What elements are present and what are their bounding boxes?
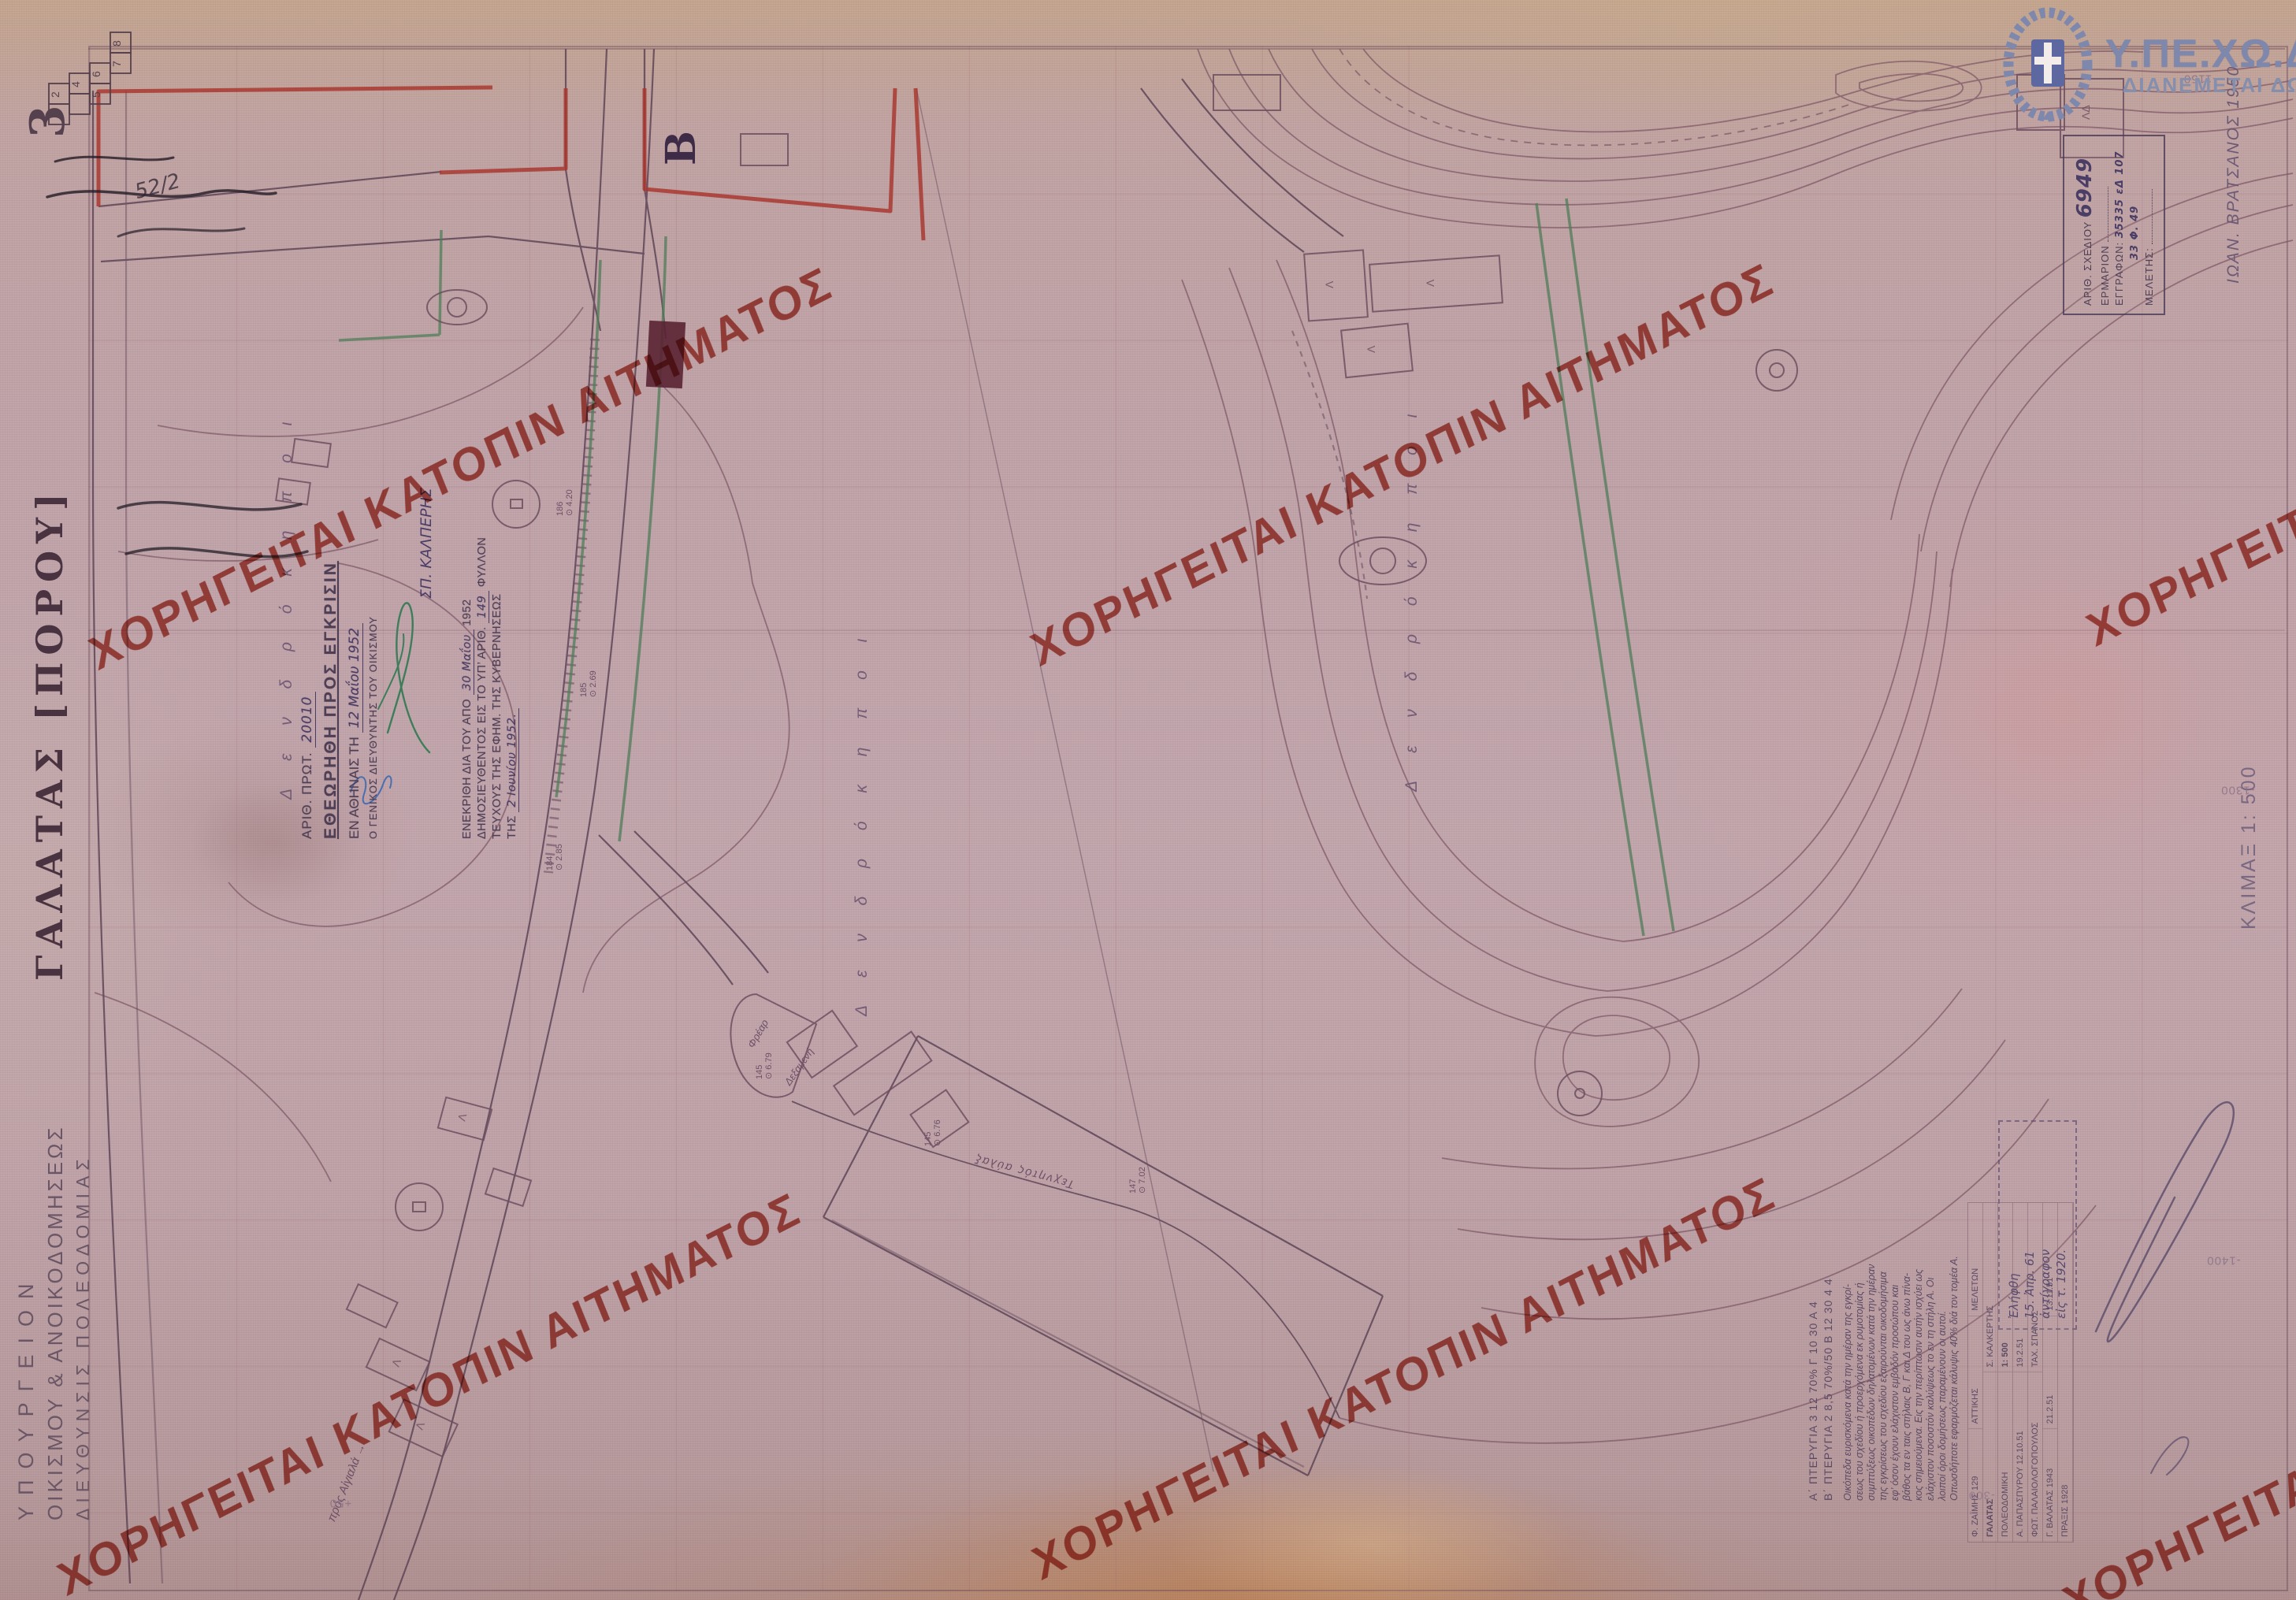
title-block: Φ. ΖΑΪΜΗΣ 129ΑΤΤΙΚΗΣΜΕΛΕΤΩΝ ΓΑΛΑΤΑΣΣ. ΚΑ… bbox=[1967, 1304, 2074, 1542]
approval-stamp: ΑΡΙΘ. ΠΡΩΤ. 20010 ΕΘΕΩΡΗΘΗ ΠΡΟΣ ΕΓΚΡΙΣΙΝ… bbox=[299, 575, 521, 839]
grid-label: +50 bbox=[329, 1497, 351, 1510]
spot-elevation: 147⊙ 7.02 bbox=[1128, 1150, 1147, 1194]
svg-text:8: 8 bbox=[110, 40, 123, 46]
flourish-signature bbox=[2096, 1102, 2234, 1342]
grid-label: -1300 bbox=[2220, 784, 2254, 797]
sheet-number: 3 bbox=[20, 87, 76, 138]
svg-text:Λ: Λ bbox=[389, 1357, 403, 1368]
block-letter: B bbox=[657, 101, 705, 165]
svg-text:Λ: Λ bbox=[455, 1112, 469, 1123]
scanned-map-sheet: Λ Λ Λ ΛΔ Λ Λ Λ bbox=[0, 0, 2296, 1600]
ministry-line: ΥΠΟΥΡΓΕΙΟΝ bbox=[14, 1123, 39, 1520]
circular-landmarks bbox=[396, 290, 1797, 1231]
scale-label: ΚΛΙΜΑΞ 1: 500 bbox=[2238, 737, 2261, 930]
published-label: ΔΗΜΟΣΙΕΥΘΕΝΤΟΣ ΕΙΣ ΤΟ ΥΠ’ ΑΡΙΘ. bbox=[476, 626, 489, 839]
svg-text:7: 7 bbox=[110, 61, 123, 67]
green-road-edges bbox=[339, 199, 1674, 936]
gazette-issue: 149 bbox=[476, 591, 489, 623]
approved-year: 1952 bbox=[461, 599, 474, 626]
agency-acronym: Υ.ΠΕ.ΧΩ.Δ.Ε. bbox=[2105, 33, 2296, 75]
sheet-word: ΦΥΛΛΟΝ bbox=[476, 537, 489, 588]
svg-text:6: 6 bbox=[90, 71, 102, 77]
area-label-dendrokipoi-2: Δ ε ν δ ρ ό κ η π ο ι bbox=[853, 614, 871, 1016]
laurel-shield-icon bbox=[2001, 5, 2094, 124]
department-line: ΟΙΚΙΣΜΟΥ & ΑΝΟΙΚΟΔΟΜΗΣΕΩΣ bbox=[43, 1123, 68, 1520]
approved-by-label: ΕΝΕΚΡΙΘΗ ΔΙΑ ΤΟΥ ΑΠΟ bbox=[461, 699, 474, 839]
protocol-number: 20010 bbox=[299, 692, 316, 748]
athens-date-value: 12 Μαΐου 1952 bbox=[347, 623, 363, 733]
svg-text:Λ: Λ bbox=[1424, 279, 1436, 287]
documents-value: 35335 εΔ 107 bbox=[2114, 151, 2126, 239]
spot-elevation: 185⊙ 2.69 bbox=[579, 654, 598, 697]
area-label-dendrokipoi-3: Δ ε ν δ ρ ό κ η π ο ι bbox=[1402, 567, 1421, 792]
wing-b-line: Β΄ ΠΤΕΡΥΓΙΑ 2 8,5 70%/50 Β 12 30 4 4 bbox=[1822, 1152, 1834, 1501]
cabinet-label: ΕΡΜΑΡΙΟΝ bbox=[2099, 245, 2111, 306]
spot-elevation: 145⊙ 6.76 bbox=[923, 1103, 942, 1146]
study-label: ΜΕΛΕΤΗΣ: bbox=[2143, 247, 2155, 306]
surveyor-note: ΙΩΑΝ. ΒΡΑΤΣΑΝΟΣ 1950 bbox=[2224, 134, 2243, 284]
drawing-no-value: 6949 bbox=[2073, 158, 2097, 217]
documents-value-2: 33 Φ. 49 bbox=[2129, 206, 2141, 260]
approved-date: 30 Μαΐου bbox=[461, 629, 474, 695]
drawing-no-label: ΑΡΙΘ. ΣΧΕΔΙΟΥ bbox=[2082, 221, 2094, 306]
wing-a-line: Α΄ ΠΤΕΡΥΓΙΑ 3 12 70% Γ 10 30 Α 4 bbox=[1807, 1152, 1819, 1501]
svg-text:5: 5 bbox=[90, 91, 102, 98]
gazette-volume-line: ΤΕΥΧΟΥΣ ΤΗΣ ΕΦΗΜ. ΤΗΣ ΚΥΒΕΡΝΗΣΕΩΣ bbox=[491, 575, 503, 839]
ypexode-logo: Υ.ΠΕ.ΧΩ.Δ.Ε. ΔΙΑΝΕΜΕΤΑΙ ΔΩΡΕΑΝ bbox=[2001, 5, 2296, 124]
of-label: ΤΗΣ bbox=[506, 815, 518, 839]
spot-elevation: 145⊙ 6.79 bbox=[755, 1036, 774, 1079]
documents-label: ΕΓΓΡΑΦΩΝ: bbox=[2113, 242, 2125, 306]
svg-text:Λ: Λ bbox=[1365, 345, 1377, 353]
red-block-outlines bbox=[98, 87, 923, 240]
distribution-note: ΔΙΑΝΕΜΕΤΑΙ ΔΩΡΕΑΝ bbox=[2105, 75, 2296, 96]
roads bbox=[93, 49, 1383, 1600]
archive-stamp: ΑΡΙΘ. ΣΧΕΔΙΟΥ 6949 ΕΡΜΑΡΙΟΝ ΕΓΓΡΑΦΩΝ: 35… bbox=[2063, 135, 2165, 315]
gazette-date: 2 Ιουνίου 1952. bbox=[506, 708, 519, 811]
map-title: ΓΑΛΑΤΑΣ [ΠΟΡΟΥ] bbox=[28, 465, 71, 981]
grid-label: -1400 bbox=[2206, 1254, 2240, 1268]
athens-date-label: ΕΝ ΑΘΗΝΑΙΣ ΤΗ bbox=[347, 737, 362, 839]
ministry-block: ΥΠΟΥΡΓΕΙΟΝ ΟΙΚΙΣΜΟΥ & ΑΝΟΙΚΟΔΟΜΗΣΕΩΣ ΔΙΕ… bbox=[14, 1123, 94, 1520]
spot-elevation: 184⊙ 2.85 bbox=[545, 827, 564, 871]
svg-text:Λ: Λ bbox=[1323, 280, 1336, 288]
division-line: ΔΙΕΥΘΥΝΣΙΣ ΠΟΛΕΟΔΟΜΙΑΣ bbox=[72, 1123, 94, 1520]
reviewed-line: ΕΘΕΩΡΗΘΗ ΠΡΟΣ ΕΓΚΡΙΣΙΝ bbox=[321, 575, 340, 839]
area-label-dendrokipoi-1: Δ ε ν δ ρ ό κ η π ο ι bbox=[277, 461, 296, 800]
zoning-notes: Α΄ ΠΤΕΡΥΓΙΑ 3 12 70% Γ 10 30 Α 4 Β΄ ΠΤΕΡ… bbox=[1807, 1152, 1960, 1501]
spot-elevation: 186⊙ 4.20 bbox=[555, 473, 574, 516]
director-line: Ο ΓΕΝΙΚΟΣ ΔΙΕΥΘΥΝΤΗΣ ΤΟΥ ΟΙΚΙΣΜΟΥ bbox=[367, 575, 379, 839]
protocol-label: ΑΡΙΘ. ΠΡΩΤ. bbox=[299, 752, 314, 839]
